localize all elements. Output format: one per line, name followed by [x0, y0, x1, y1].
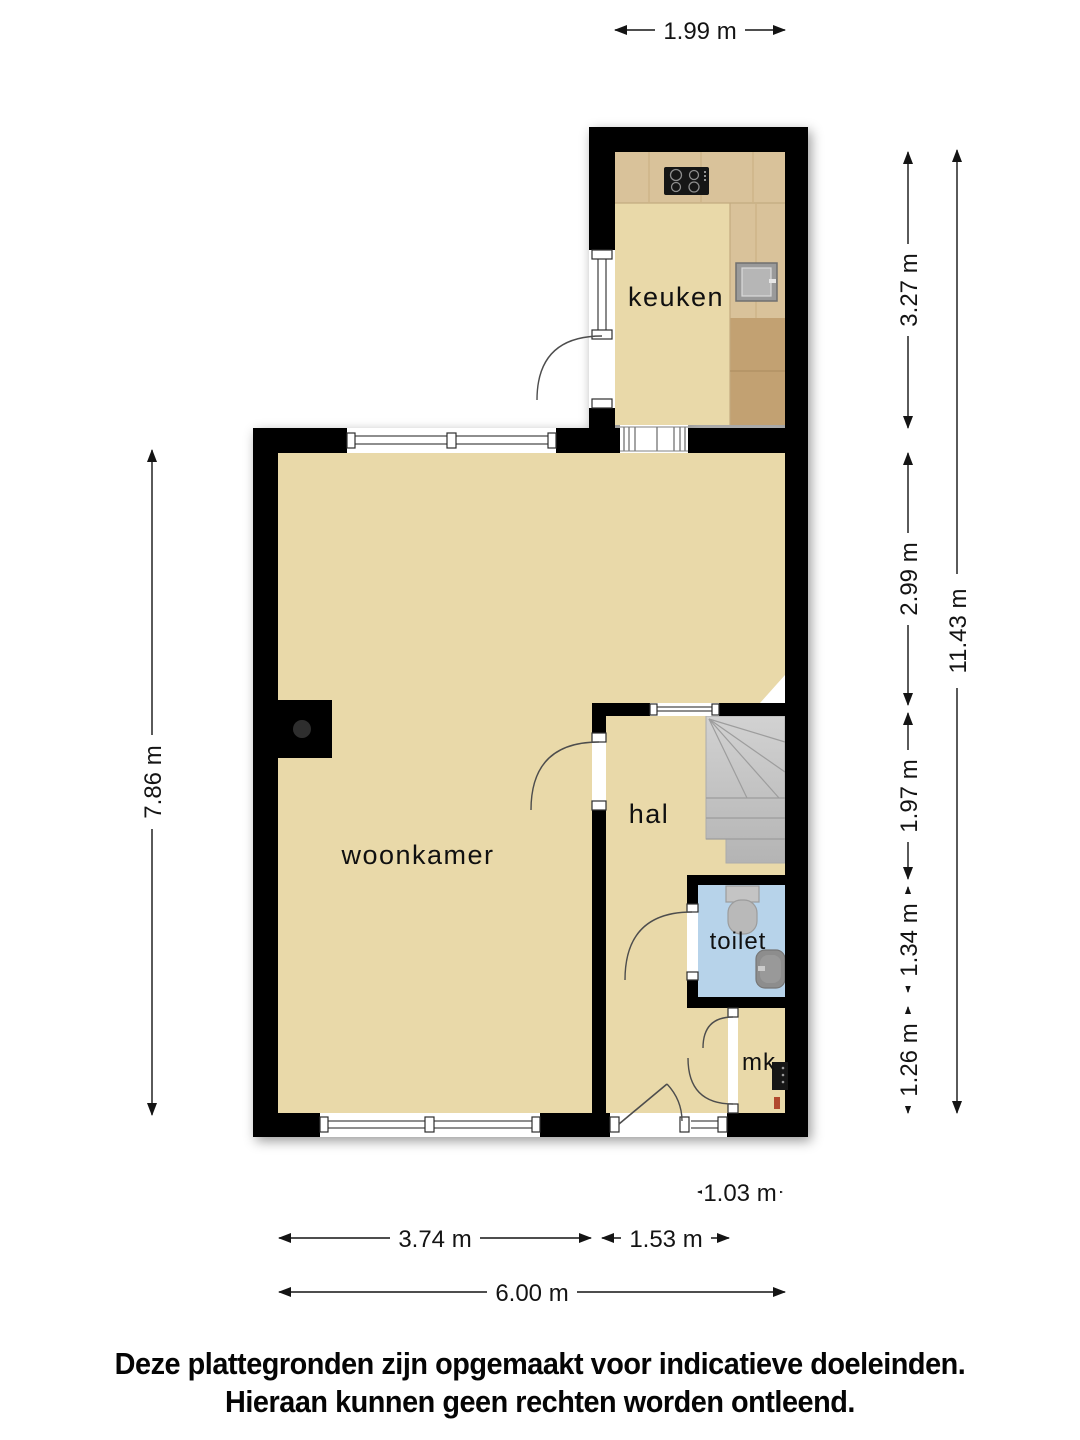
dim-hall-width: 1.53 m [629, 1226, 702, 1253]
disclaimer-line1: Deze plattegronden zijn opgemaakt voor i… [38, 1346, 1042, 1382]
mk-door-opening [728, 1008, 738, 1113]
kitchen-steps [620, 425, 688, 453]
dim-total-height: 11.43 m [945, 589, 972, 674]
hall-top-window [650, 703, 719, 716]
cooktop-icon [664, 167, 709, 195]
floor-plan-svg: keuken woonkamer hal toilet mk 1.99 m 7.… [0, 0, 1080, 1440]
room-label-woonkamer: woonkamer [340, 840, 494, 870]
room-label-keuken: keuken [628, 282, 724, 312]
dim-kitchen-width: 1.99 m [663, 18, 736, 45]
front-door-opening [610, 1113, 689, 1137]
room-label-mk: mk [742, 1049, 776, 1076]
sink-icon [736, 263, 777, 301]
dim-hall-height: 1.97 m [896, 759, 923, 832]
dim-kitchen-height: 3.27 m [896, 253, 923, 326]
dim-toilet-width: 1.03 m [703, 1180, 776, 1207]
room-label-hal: hal [629, 799, 670, 829]
dim-mk-height: 1.26 m [896, 1023, 923, 1096]
washbasin-icon [756, 950, 785, 988]
dim-toilet-height: 1.34 m [896, 903, 923, 976]
fireplace [278, 700, 332, 758]
dim-total-width: 6.00 m [495, 1280, 568, 1307]
room-label-toilet: toilet [710, 928, 767, 955]
dim-living-upper-height: 2.99 m [896, 542, 923, 615]
kitchen-door-opening [589, 250, 615, 408]
dim-living-height: 7.86 m [140, 745, 167, 818]
building [253, 127, 808, 1137]
hall-door-opening [592, 733, 606, 810]
disclaimer-line2: Hieraan kunnen geen rechten worden ontle… [38, 1384, 1042, 1420]
dim-living-width: 3.74 m [398, 1226, 471, 1253]
toilet-door-opening [687, 904, 698, 980]
floor-plan-page: keuken woonkamer hal toilet mk 1.99 m 7.… [0, 0, 1080, 1440]
toilet-bowl-icon [726, 886, 759, 934]
red-marker [774, 1097, 780, 1109]
